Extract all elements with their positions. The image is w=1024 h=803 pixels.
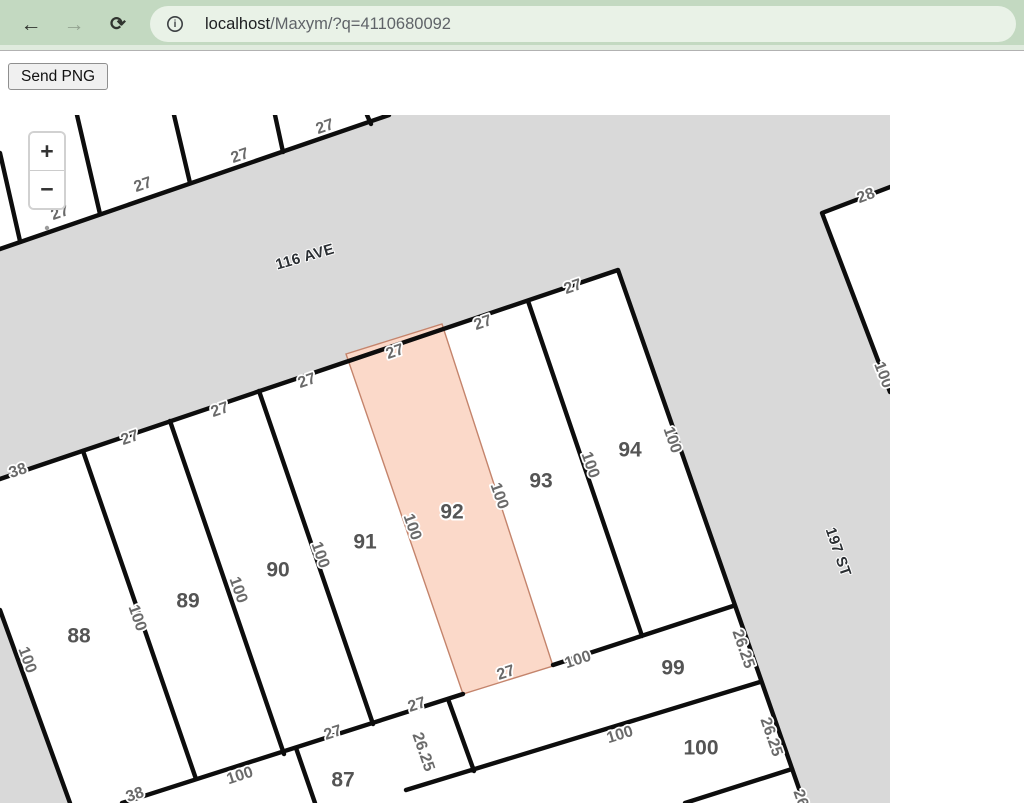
lot-label-92: 92 (440, 501, 463, 524)
lot-label-91: 91 (353, 531, 377, 554)
zoom-in-button[interactable]: + (30, 133, 64, 170)
map-point-dot (45, 226, 49, 230)
dimension-label-26.25: 26.25 (408, 730, 437, 773)
parcel-map-svg[interactable]: 2727272728100382727272727271001001001001… (0, 115, 890, 803)
svg-text:i: i (174, 19, 177, 30)
info-icon[interactable]: i (166, 15, 184, 33)
lot-label-93: 93 (529, 470, 552, 493)
dimension-label-100: 100 (578, 450, 603, 481)
send-png-button[interactable]: Send PNG (8, 63, 108, 90)
dimension-label-100: 100 (563, 648, 594, 672)
forward-icon[interactable]: → (59, 10, 89, 40)
map-zoom-control: + − (28, 131, 66, 210)
lot-label-87: 87 (331, 769, 354, 792)
dimension-label-27: 27 (406, 694, 428, 716)
url-text[interactable]: localhost/Maxym/?q=4110680092 (205, 6, 451, 42)
dimension-label-27: 27 (322, 722, 344, 744)
dimension-label-100: 100 (308, 540, 333, 571)
map-container[interactable]: + − 272727272810038272727272727100100100… (0, 115, 890, 803)
url-path: /Maxym/?q=4110680092 (270, 15, 451, 33)
dimension-label-38: 38 (124, 784, 146, 803)
lot-label-94: 94 (618, 439, 642, 462)
lot-label-90: 90 (266, 559, 289, 582)
dimension-label-100: 100 (125, 603, 150, 634)
lot-label-89: 89 (176, 590, 199, 613)
lot-label-99: 99 (661, 657, 684, 680)
lot-label-100: 100 (683, 737, 718, 760)
page: { "browser": { "back_icon": "←", "forwar… (0, 0, 1024, 803)
back-icon[interactable]: ← (16, 10, 46, 40)
lot-label-88: 88 (67, 625, 91, 648)
zoom-out-button[interactable]: − (30, 170, 64, 208)
dimension-label-27: 27 (132, 174, 154, 196)
browser-toolbar: ← → ⟳ i localhost/Maxym/?q=4110680092 (0, 0, 1024, 51)
url-host: localhost (205, 15, 270, 33)
reload-icon[interactable]: ⟳ (103, 10, 133, 40)
address-bar[interactable]: i localhost/Maxym/?q=4110680092 (150, 6, 1016, 42)
